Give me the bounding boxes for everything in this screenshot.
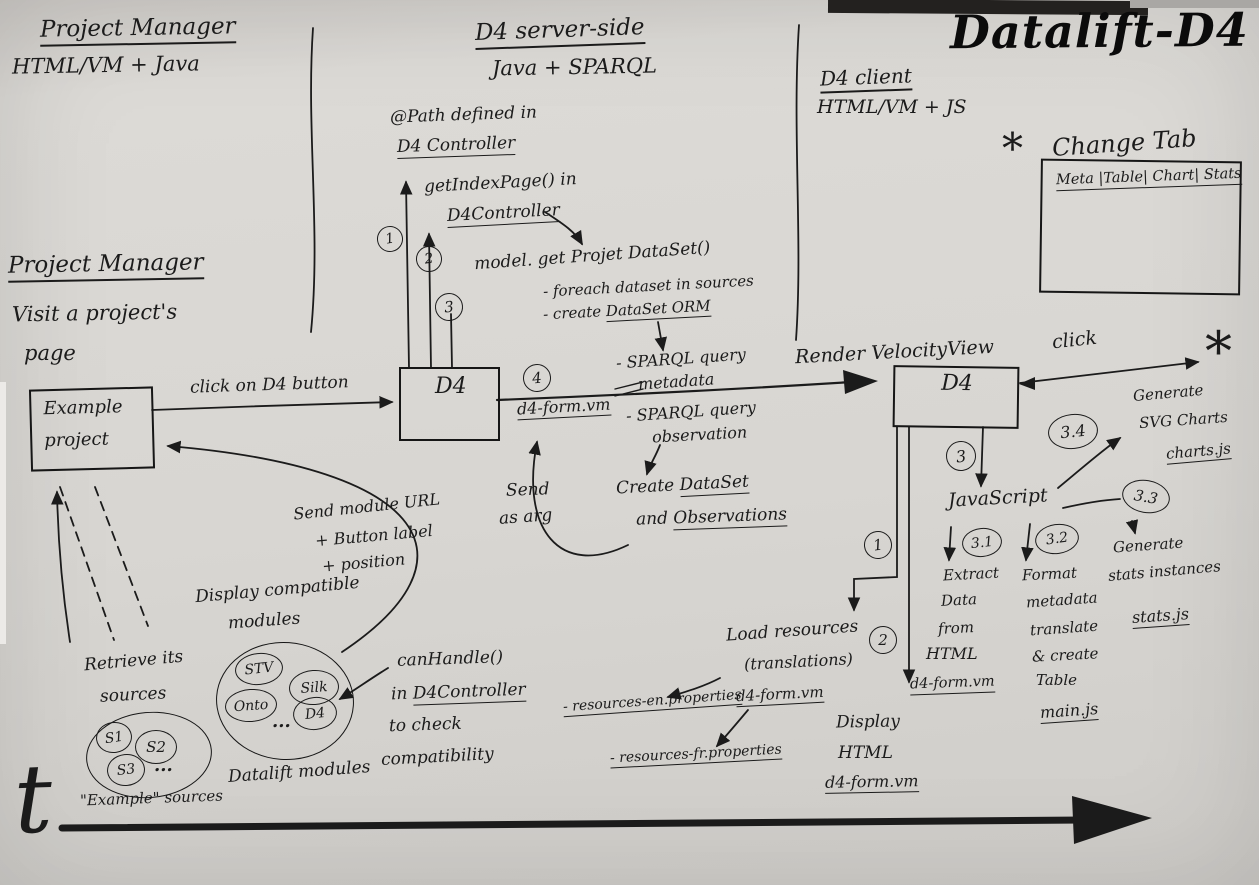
send-as-arg-line2: as arg [498,506,553,528]
canhandle-line2: in D4Controller [391,681,526,704]
s31-line3: from [938,619,975,637]
d4-server-node: D4 [399,367,500,441]
observations-underlined: Observations [673,504,787,530]
lane-client-tech: HTML/VM + JS [817,97,967,118]
source-s2-label: S2 [146,738,166,756]
step-4-num: 4 [531,369,542,388]
pm-action-line2: page [24,342,76,365]
page-title: Datalift-D4 [950,5,1249,58]
module-d4-label: D4 [304,704,326,722]
client-step-3-num: 3 [955,446,968,466]
path-note-line2: D4 Controller [397,134,516,159]
and-pre: and [636,508,674,529]
change-tab-star: * [1002,126,1023,172]
timeline-arrowhead [1072,796,1152,844]
example-project-line2: project [44,430,109,451]
line-step3-up [451,314,452,368]
canhandle-in: in [391,684,413,705]
pm-actor-heading: Project Manager [8,250,204,283]
module-stv-label: STV [244,660,275,679]
s31-file: d4-form.vm [910,675,995,696]
lane-client-heading: D4 client [820,64,913,93]
module-onto-label: Onto [233,696,269,714]
source-s1-label: S1 [104,728,125,746]
lane-pm-tech: HTML/VM + Java [12,52,200,78]
sources-dots: ... [154,756,173,776]
client-step-2-num: 2 [878,631,888,649]
lane-pm-heading: Project Manager [40,14,236,47]
display-line1: Display [836,712,900,732]
lane-server-heading: D4 server-side [475,15,646,50]
s32-file: main.js [1039,700,1099,724]
arrow-step1-up [406,182,409,368]
step-33-num: 3.3 [1133,486,1160,508]
s32-line4: & create [1032,645,1099,665]
s31-line2: Data [941,591,978,609]
d4-server-label: D4 [435,375,467,399]
display-line2: HTML [838,744,893,763]
change-tab-star-target: * [1205,322,1232,381]
step-1-num: 1 [384,230,396,247]
d4-client-label: D4 [941,372,973,397]
create-dataset-underlined: DataSet [679,472,749,498]
example-project-line1: Example [43,397,123,419]
arrow-click-star [1020,362,1198,383]
arrow-into-d4-client [1019,377,1035,390]
dashed-source-link-1 [60,487,114,640]
canhandle-line3: to check [389,715,462,736]
d4-client-node: D4 [893,365,1020,429]
dashed-source-link-2 [95,487,148,626]
step-34-num: 3.4 [1059,421,1086,443]
source-s3-label: S3 [116,761,136,779]
pm-action-line1: Visit a project's [12,301,178,327]
modules-dots: ... [272,712,291,732]
send-as-arg-line1: Send [506,480,550,500]
step-3-num: 3 [443,298,454,317]
s33-file: stats.js [1131,605,1189,629]
lane-server-tech: Java + SPARQL [492,55,657,81]
canhandle-line1: canHandle() [397,648,504,670]
arrow-s32 [1026,524,1030,560]
timeline-label: t [12,747,54,853]
step-2-num: 2 [423,250,434,267]
module-silk-label: Silk [300,679,328,697]
retrieve-line2: sources [100,684,167,706]
arrow-to-createds [647,445,660,474]
client-step-1-num: 1 [872,535,884,554]
step-31-num: 3.1 [970,533,994,551]
arrow-click-d4-button [152,402,392,410]
s31-line4: HTML [926,645,978,663]
line-to-s33 [1063,499,1120,508]
arrow-s31 [949,527,951,560]
create-pre: Create [616,475,681,498]
client-step-2-badge: 2 [869,626,897,654]
model-create-pre: - create [543,302,607,323]
and-observations-line: and Observations [636,505,788,529]
arrow-to-sparql [658,322,663,350]
arrow-s33 [1132,521,1135,533]
step-32-num: 3.2 [1045,530,1069,549]
example-project-node: Example project [29,386,155,471]
s32-line5: Table [1036,672,1077,689]
arrow-sources-to-project [57,492,70,642]
canhandle-controller-underlined: D4Controller [412,680,526,706]
arrow-res-fr [717,710,748,746]
display-file: d4-form.vm [825,772,919,793]
divider-right [796,25,799,340]
arrow-step3-js [981,427,983,486]
whiteboard-sketch: Project Manager HTML/VM + Java D4 server… [0,0,1259,885]
divider-left [311,28,315,332]
arrow-step1-loadres [854,427,897,610]
s32-line1: Format [1022,565,1078,584]
timeline-line [62,820,1085,828]
arrow-render-head [843,370,878,394]
s31-line1: Extract [943,565,1000,584]
